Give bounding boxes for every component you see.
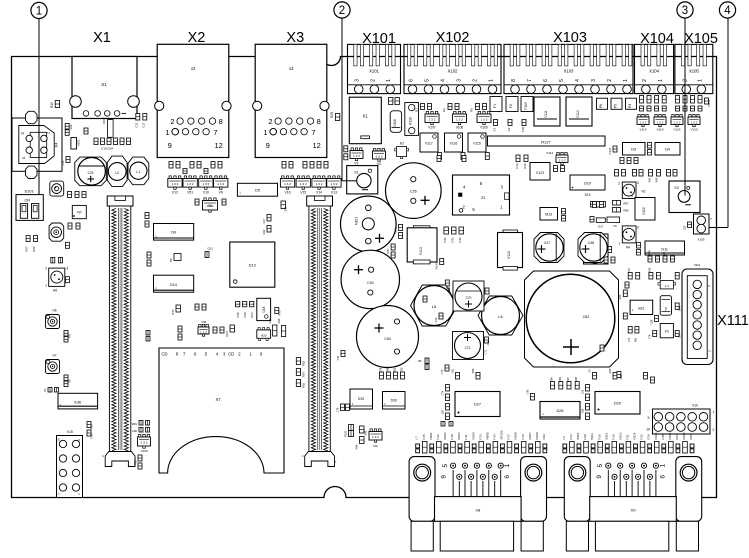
svg-text:X1: X1 [93,30,111,46]
svg-text:L6: L6 [562,436,566,440]
svg-text:3: 3 [355,79,361,82]
svg-text:X1: X1 [101,82,107,87]
svg-text:8: 8 [511,79,517,82]
svg-text:CD: CD [228,352,234,357]
svg-text:F23: F23 [569,434,573,440]
svg-text:V113: V113 [507,251,511,259]
svg-text:R93: R93 [364,430,368,435]
svg-text:D14: D14 [170,283,177,287]
svg-text:R95: R95 [90,424,94,430]
svg-text:1 3 2: 1 3 2 [376,155,383,159]
svg-text:4: 4 [575,79,581,82]
svg-text:C71: C71 [465,346,471,350]
svg-text:V901: V901 [77,139,81,146]
svg-text:1: 1 [618,242,620,246]
svg-text:R66: R66 [624,209,630,213]
svg-text:R901: R901 [429,432,433,440]
svg-text:X100: X100 [102,117,106,124]
svg-text:R57: R57 [25,246,29,252]
svg-text:1 3 2: 1 3 2 [640,121,647,125]
svg-text:C54: C54 [384,337,391,341]
svg-text:M2: M2 [663,251,666,255]
svg-text:1 3 2: 1 3 2 [657,121,664,125]
svg-text:R15: R15 [50,102,54,108]
svg-text:H6: H6 [52,309,56,313]
svg-text:1: 1 [165,128,169,137]
svg-text:C76: C76 [649,334,652,339]
svg-text:C85: C85 [582,408,585,413]
svg-text:CK3: CK3 [207,247,213,251]
svg-text:X111: X111 [694,263,701,267]
svg-text:D46: D46 [277,318,281,323]
svg-text:3: 3 [637,226,639,230]
svg-text:D30: D30 [284,206,288,211]
svg-text:V114: V114 [546,151,553,155]
svg-text:C17: C17 [142,122,146,128]
svg-text:D43: D43 [618,294,622,299]
svg-text:F103: F103 [524,102,528,109]
svg-text:2: 2 [618,182,620,186]
svg-text:C71: C71 [484,349,488,354]
svg-text:2: 2 [170,117,174,126]
svg-text:4: 4 [441,79,447,82]
svg-text:8: 8 [219,117,223,126]
svg-text:C57: C57 [386,248,390,254]
svg-text:1: 1 [263,128,267,137]
svg-text:C57: C57 [627,267,631,272]
svg-text:C11: C11 [135,122,139,127]
svg-text:F12: F12 [436,434,440,440]
svg-text:10: 10 [646,428,650,432]
svg-text:9: 9 [596,475,603,479]
svg-text:C123: C123 [608,147,612,154]
svg-text:12: 12 [313,141,321,150]
svg-text:P5: P5 [614,104,618,108]
svg-text:9: 9 [168,141,172,150]
svg-text:ON: ON [25,199,31,203]
svg-text:N20: N20 [261,334,267,338]
svg-text:C76: C76 [337,407,340,412]
svg-text:F21: F21 [626,434,630,440]
svg-text:V12: V12 [172,190,178,194]
svg-text:R67: R67 [624,202,630,206]
svg-text:SD: SD [44,388,47,392]
svg-text:F15: F15 [422,434,426,440]
svg-text:R17: R17 [262,218,266,223]
svg-text:V51: V51 [187,190,193,194]
svg-text:5: 5 [425,79,431,82]
svg-text:1 3 2: 1 3 2 [481,118,488,122]
svg-text:N2: N2 [642,190,646,194]
svg-text:L1: L1 [136,170,140,174]
svg-text:1 3 2: 1 3 2 [172,182,179,186]
svg-text:R83: R83 [558,377,562,382]
svg-text:5: 5 [559,79,565,82]
svg-text:D9: D9 [171,231,176,235]
svg-text:M4: M4 [373,444,377,448]
svg-text:V94: V94 [202,320,207,324]
svg-text:R29: R29 [69,124,73,129]
svg-text:R113: R113 [707,99,711,106]
svg-text:1 3 2: 1 3 2 [691,121,698,125]
svg-text:3: 3 [591,79,597,82]
svg-text:V115: V115 [473,142,481,146]
svg-text:2: 2 [642,79,648,82]
svg-text:C87: C87 [648,251,651,256]
svg-text:1 3 2: 1 3 2 [316,182,323,186]
svg-text:1 3 2: 1 3 2 [674,121,681,125]
svg-text:R41: R41 [648,177,652,182]
svg-text:D28: D28 [557,409,564,413]
svg-text:G87: G87 [442,409,445,414]
svg-text:C45: C45 [526,389,530,394]
svg-text:R3: R3 [442,108,446,112]
svg-text:C72: C72 [628,337,631,342]
svg-text:D29: D29 [614,402,621,406]
svg-text:1 3 2: 1 3 2 [353,154,360,158]
svg-text:X105: X105 [689,69,699,74]
svg-text:R87: R87 [302,371,306,377]
svg-text:C94: C94 [542,434,546,440]
svg-text:C90: C90 [132,429,138,433]
svg-text:3: 3 [66,267,68,271]
svg-text:V14: V14 [316,190,322,194]
svg-text:X8: X8 [475,508,481,513]
svg-text:D30: D30 [391,399,397,403]
svg-text:V111: V111 [544,110,548,118]
svg-text:R74: R74 [133,459,137,465]
svg-text:C70: C70 [466,296,472,300]
svg-text:D12: D12 [249,263,257,268]
svg-text:3: 3 [682,5,688,17]
svg-text:2: 2 [45,267,47,271]
svg-text:V123: V123 [536,171,544,175]
svg-text:7: 7 [708,285,712,287]
svg-text:H7: H7 [52,354,56,358]
svg-text:7: 7 [527,79,533,82]
svg-text:V125: V125 [673,128,680,132]
svg-text:C40: C40 [367,281,374,285]
svg-text:1 3 2: 1 3 2 [284,182,291,186]
svg-text:B103: B103 [457,432,461,439]
svg-text:R60: R60 [619,374,623,379]
svg-text:B112: B112 [604,432,608,439]
svg-text:V106: V106 [456,126,464,130]
svg-text:F20: F20 [583,434,587,440]
svg-text:C2: C2 [507,127,511,131]
svg-text:C21: C21 [443,237,447,243]
svg-text:1: 1 [708,350,712,352]
svg-text:R5: R5 [470,108,474,112]
svg-text:V117: V117 [425,142,433,146]
svg-text:K2: K2 [400,142,404,146]
svg-text:R96: R96 [471,368,475,373]
svg-text:F22: F22 [640,434,644,440]
svg-text:R905: R905 [485,432,489,440]
svg-text:1 3 2: 1 3 2 [202,182,209,186]
svg-text:V120: V120 [690,128,697,132]
svg-text:C04: C04 [675,434,679,440]
svg-text:C47: C47 [544,241,550,245]
svg-text:2: 2 [713,428,715,432]
svg-text:C30: C30 [521,126,525,132]
svg-text:X7: X7 [215,397,221,402]
svg-text:C13: C13 [515,163,519,169]
svg-text:F18: F18 [450,434,454,440]
svg-text:X102: X102 [436,30,470,46]
svg-text:C1: C1 [493,127,497,131]
svg-text:D10: D10 [584,182,591,186]
svg-text:L2: L2 [115,171,119,175]
svg-text:F25: F25 [661,434,665,440]
svg-text:V16: V16 [285,190,291,194]
svg-text:C96: C96 [379,367,383,372]
svg-text:M101: M101 [355,217,359,225]
svg-text:1: 1 [623,79,629,82]
svg-text:1.3: 1.3 [665,284,670,288]
svg-text:Y8: Y8 [664,307,668,311]
svg-text:V13: V13 [331,190,337,194]
svg-text:2: 2 [370,79,376,82]
svg-text:4: 4 [724,5,731,17]
svg-text:B76: B76 [171,309,175,314]
svg-text:6: 6 [409,79,415,82]
svg-text:R19: R19 [523,163,527,169]
svg-text:1 3 2: 1 3 2 [300,182,307,186]
svg-text:V122: V122 [642,207,646,215]
svg-text:1 3 2: 1 3 2 [141,441,148,445]
svg-text:R1: R1 [415,108,419,112]
svg-text:R109: R109 [535,432,539,440]
svg-text:C23: C23 [88,171,94,175]
svg-text:V9: V9 [219,190,223,194]
svg-text:F2: F2 [509,104,513,108]
svg-text:F1: F1 [493,104,497,108]
svg-text:R42: R42 [648,267,652,272]
svg-text:N7: N7 [77,211,82,215]
svg-text:X2: X2 [188,30,206,46]
svg-text:1: 1 [489,79,495,82]
svg-text:L5: L5 [432,304,437,309]
svg-text:V110: V110 [576,110,580,118]
svg-text:C74: C74 [442,390,445,395]
svg-text:1 3 2: 1 3 2 [187,182,194,186]
svg-text:C46: C46 [458,237,462,243]
svg-text:Z3: Z3 [481,196,485,200]
svg-text:C25: C25 [61,160,65,165]
svg-text:H6: H6 [53,289,57,293]
svg-text:E36: E36 [74,401,81,405]
svg-text:X3: X3 [286,30,304,46]
svg-text:C9: C9 [588,369,592,373]
svg-text:12: 12 [215,141,223,150]
svg-text:R104: R104 [471,432,475,440]
svg-text:R91: R91 [132,422,138,426]
svg-text:F13: F13 [478,434,482,440]
svg-text:F26: F26 [597,434,601,440]
svg-text:X104: X104 [649,69,659,74]
svg-text:R42: R42 [655,177,659,182]
svg-text:V10: V10 [203,190,209,194]
svg-text:1 3 2: 1 3 2 [217,182,224,186]
svg-text:R97: R97 [566,377,570,382]
svg-text:D18: D18 [262,306,266,312]
svg-text:D25: D25 [358,397,364,401]
svg-text:X103: X103 [564,69,574,74]
svg-text:R22: R22 [262,229,266,234]
svg-text:R116: R116 [654,432,658,439]
svg-text:6: 6 [543,79,549,82]
svg-text:M4: M4 [54,143,58,148]
svg-text:D6: D6 [208,204,212,208]
svg-text:9: 9 [648,416,650,420]
svg-text:X103: X103 [553,30,587,46]
svg-text:R28: R28 [330,112,334,118]
svg-text:C71: C71 [486,340,490,345]
svg-text:6: 6 [659,475,666,479]
svg-text:C80: C80 [400,367,404,372]
svg-text:X104: X104 [640,31,674,47]
svg-text:5: 5 [442,464,449,468]
svg-text:C92: C92 [451,237,455,243]
svg-text:1: 1 [45,284,47,288]
svg-text:S101: S101 [24,189,34,194]
svg-text:X101: X101 [369,69,379,74]
svg-text:R98: R98 [574,377,578,382]
svg-text:F17: F17 [507,434,511,440]
svg-text:F24: F24 [647,434,651,440]
svg-text:V118: V118 [657,128,664,132]
svg-text:B21: B21 [638,307,644,311]
svg-text:X105: X105 [697,238,704,242]
svg-text:C48: C48 [588,241,594,245]
svg-text:1: 1 [659,464,666,468]
svg-text:C31: C31 [336,355,340,360]
svg-text:V5: V5 [613,224,617,228]
svg-text:R75: R75 [278,310,282,316]
svg-text:2: 2 [339,5,345,17]
svg-text:3: 3 [637,181,639,185]
svg-text:10: 10 [57,438,61,442]
svg-text:F3: F3 [665,330,669,334]
svg-text:V108: V108 [393,119,397,127]
svg-text:S2: S2 [674,186,678,190]
svg-text:R127: R127 [541,140,551,145]
svg-text:R82: R82 [302,360,306,366]
svg-text:F14: F14 [492,434,496,440]
svg-text:C84: C84 [394,228,398,234]
svg-text:F19: F19 [611,434,615,440]
svg-text:R114: R114 [633,432,637,439]
svg-text:C53: C53 [684,225,687,230]
svg-text:C84: C84 [689,434,693,440]
svg-text:D3: D3 [631,148,636,152]
svg-text:R85: R85 [393,367,397,372]
svg-text:L7: L7 [415,436,419,440]
svg-text:C58: C58 [236,312,240,318]
svg-text:1 3 2: 1 3 2 [559,159,566,163]
svg-text:D17: D17 [598,225,604,229]
svg-text:1 3 2: 1 3 2 [372,435,379,439]
svg-text:6: 6 [504,475,511,479]
svg-text:1: 1 [36,6,42,18]
svg-text:D11: D11 [661,248,668,252]
svg-text:L6: L6 [498,314,503,319]
svg-text:x2: x2 [191,66,196,71]
svg-text:B119: B119 [576,432,580,439]
svg-text:x3: x3 [289,66,294,71]
svg-text:R117: R117 [668,432,672,439]
svg-text:X102: X102 [448,69,458,74]
svg-text:5: 5 [597,464,604,468]
svg-text:V116: V116 [450,142,458,146]
svg-text:C77: C77 [679,333,682,338]
svg-text:D5: D5 [255,189,260,193]
svg-text:F16: F16 [521,434,525,440]
svg-text:1: 1 [658,79,664,82]
svg-text:M13: M13 [545,213,552,217]
svg-text:1 3 2: 1 3 2 [429,118,436,122]
svg-text:R113: R113 [618,432,622,439]
svg-text:2: 2 [607,79,613,82]
svg-text:R118: R118 [682,432,686,439]
svg-text:SP106: SP106 [500,430,504,439]
svg-text:9: 9 [441,475,448,479]
svg-text:R17: R17 [69,333,72,338]
svg-text:D27: D27 [474,403,481,407]
svg-text:B6: B6 [169,258,173,262]
svg-text:R61: R61 [635,337,638,342]
svg-text:1 3 2: 1 3 2 [200,331,207,335]
svg-text:V119: V119 [640,128,647,132]
svg-text:B6: B6 [418,359,422,363]
svg-text:G54: G54 [225,331,229,337]
svg-text:R92: R92 [302,382,306,388]
svg-text:CD: CD [161,352,167,357]
svg-text:X111: X111 [717,313,749,329]
svg-text:9: 9 [266,141,270,150]
svg-text:C62: C62 [583,315,590,319]
svg-text:1: 1 [504,464,511,468]
svg-text:V105: V105 [480,126,488,130]
svg-text:B111: B111 [590,433,594,440]
svg-text:1 3 2: 1 3 2 [331,182,338,186]
svg-text:X105: X105 [684,31,718,47]
svg-text:X101: X101 [362,31,396,47]
svg-text:C68: C68 [650,319,654,324]
svg-text:P6: P6 [599,104,603,108]
svg-text:1: 1 [697,79,703,82]
svg-text:X10: X10 [692,404,698,408]
svg-text:1: 1 [386,79,392,82]
svg-text:N4: N4 [626,246,630,250]
svg-text:R107: R107 [528,432,532,440]
svg-text:D44: D44 [678,306,682,311]
svg-text:C25: C25 [582,389,585,394]
svg-text:1 3 2: 1 3 2 [456,118,463,122]
svg-text:C45: C45 [268,318,272,323]
svg-text:P4: P4 [628,104,632,108]
svg-text:A15: A15 [434,317,438,322]
svg-text:V109: V109 [140,449,147,453]
svg-text:B102: B102 [443,432,447,439]
svg-text:C10 D24: C10 D24 [101,147,113,151]
svg-text:X9: X9 [631,508,637,513]
svg-text:R108: R108 [514,432,518,440]
svg-text:3: 3 [457,79,463,82]
svg-text:V107: V107 [428,126,436,130]
svg-text:V15: V15 [300,190,306,194]
